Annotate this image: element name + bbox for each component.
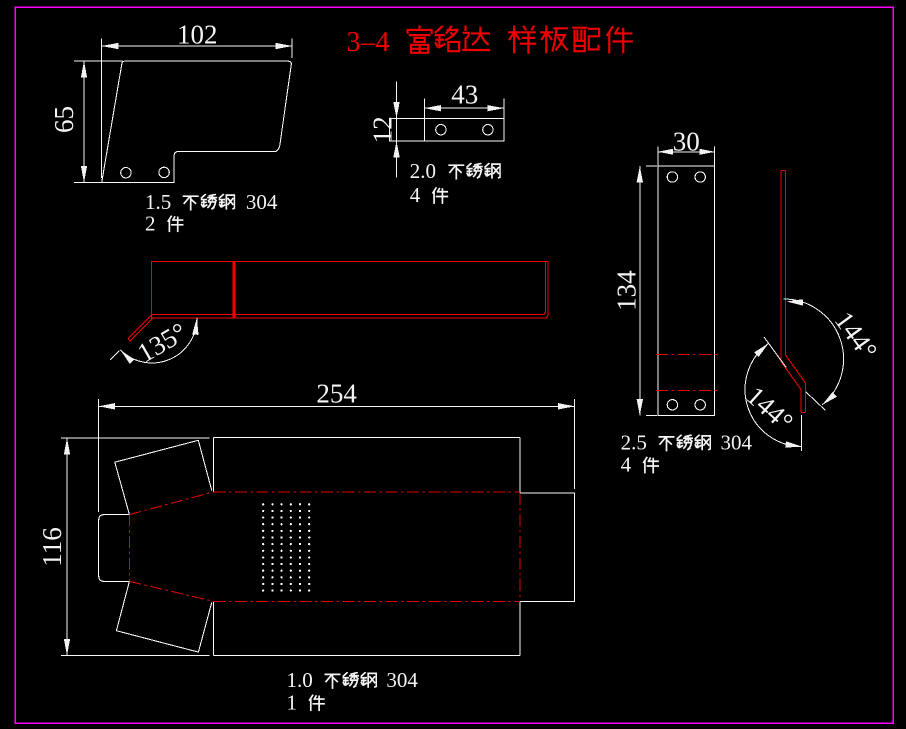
svg-text:304: 304: [721, 431, 753, 455]
svg-text:254: 254: [316, 379, 357, 409]
svg-text:3–4: 3–4: [347, 27, 391, 58]
svg-text:30: 30: [673, 127, 700, 157]
svg-text:2.5: 2.5: [621, 431, 647, 455]
svg-text:4: 4: [410, 183, 421, 207]
svg-text:43: 43: [451, 80, 478, 110]
svg-text:134: 134: [611, 270, 641, 311]
svg-text:304: 304: [386, 668, 418, 692]
svg-text:1: 1: [287, 690, 298, 714]
svg-text:1.5: 1.5: [145, 190, 171, 214]
svg-text:102: 102: [177, 19, 218, 49]
svg-text:116: 116: [37, 527, 67, 567]
svg-text:12: 12: [368, 116, 398, 143]
svg-text:4: 4: [621, 453, 632, 477]
svg-text:1.0: 1.0: [287, 668, 313, 692]
svg-text:2.0: 2.0: [410, 159, 436, 183]
svg-text:304: 304: [246, 190, 278, 214]
svg-text:65: 65: [49, 106, 79, 133]
svg-text:2: 2: [145, 211, 156, 235]
